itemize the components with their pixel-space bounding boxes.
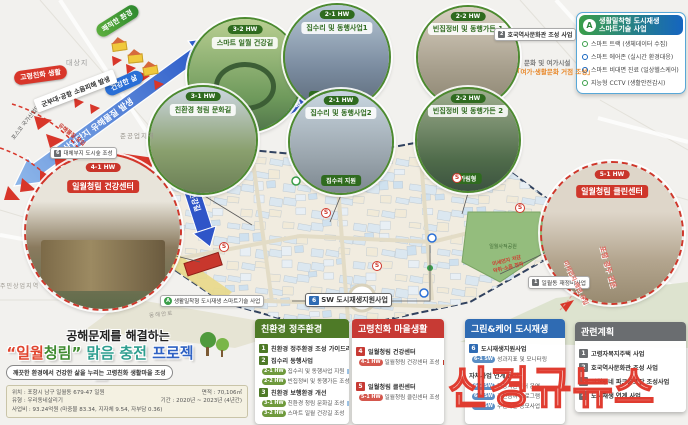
- zone-label-industrial: 준공업지역: [120, 130, 155, 140]
- park-label: 일월사적공원: [489, 243, 517, 250]
- tree-trunk: [206, 347, 209, 356]
- smart-item: 스마트 비대면 진료 (일상헬스케어): [579, 65, 683, 74]
- red-key: [443, 360, 444, 365]
- smart-tech-panel: A 생활밀착형 도시재생스마트기술 사업 스마트 트랙 (생체데이터 수집) 스…: [576, 12, 686, 94]
- forest-chip: 6: [54, 150, 61, 157]
- smart-item: 스마트 트랙 (생체데이터 수집): [579, 39, 683, 48]
- zone-label-commercial: 주민상업지역: [0, 281, 39, 290]
- building-render: [41, 240, 164, 291]
- s-marker: S: [452, 173, 462, 183]
- smart-panel-header: A 생활밀착형 도시재생스마트기술 사업: [579, 15, 683, 35]
- leisure-label-2: 「여가·생활문화 거점 조성」: [514, 66, 594, 76]
- s-marker: S: [515, 203, 525, 213]
- callout-house-repair-2: 2-1 HW 집수리 및 동행사업2 집수리 지원: [288, 89, 394, 195]
- smart-tag-pill: A 생활밀착형 도시재생 스마트기술 사업: [160, 295, 264, 307]
- s-marker: S: [219, 242, 229, 252]
- s-marker: S: [321, 208, 331, 218]
- tree-illustration: [200, 332, 216, 348]
- project-subtitle: 깨끗한 환경에서 건강한 삶을 누리는 고령친화 생활마을 조성: [6, 365, 173, 380]
- tree-trunk: [221, 350, 223, 357]
- site-label: 대상지: [66, 58, 88, 68]
- forest-note-pill: 6 대체부지 도시숲 조성: [50, 147, 117, 159]
- smart-item: 스마트 에어존 (실시간 환경대응): [579, 52, 683, 61]
- badge-a-icon: A: [583, 19, 596, 32]
- blue-key: [347, 369, 349, 374]
- s-marker: S: [372, 261, 382, 271]
- poster-canvas: 일월사적공원 스마트 일월 건강길 스마트: [0, 0, 688, 425]
- blue-key: [347, 401, 349, 406]
- project-details: 위치 : 포항시 남구 일월동 679-47 일원면적 : 70,106㎡ 유형…: [6, 385, 248, 418]
- cctv-icon: [582, 80, 588, 86]
- pin-key: [441, 395, 444, 399]
- callout-health-center: 4-1 HW 일월청림 건강센터: [24, 153, 182, 311]
- panel-eco-environment: 친환경 정주환경 1친환경 정주환경 조성 가이드라인 2집수리 동행사업 2-…: [255, 319, 349, 424]
- heritage-pill: 2 호국역사문화관 조성 사업: [494, 28, 576, 41]
- panel-elderly-life: 고령친화 마을생활 4일월청림 건강센터 4-1 HW일월청림 건강센터 조성 …: [352, 319, 444, 424]
- track-icon: [582, 41, 588, 47]
- callout-vacant-garden-2: 2-2 HW 빈집정비 및 동행가든 2 가림형: [415, 87, 521, 193]
- panel-related-plans: 관련계획 1고령자복지주택 사업 2호국역사문화관 조성 사업 3일월동네 파크…: [575, 322, 686, 412]
- sw-tag-pill: 6 SW 도시재생지원사업: [305, 293, 392, 307]
- airzone-icon: [582, 54, 588, 60]
- panel-green-care: 그린&케어 도시재생 6도시재생지원사업 6-1 SW성과지표 및 모니터링 자…: [465, 319, 565, 424]
- svg-text:산업단지 유해물질 발생: 산업단지 유해물질 발생: [61, 96, 136, 154]
- smart-item: 지능형 CCTV (생활안전감시): [579, 78, 683, 87]
- smart-panel-title: 생활밀착형 도시재생스마트기술 사업: [599, 17, 659, 33]
